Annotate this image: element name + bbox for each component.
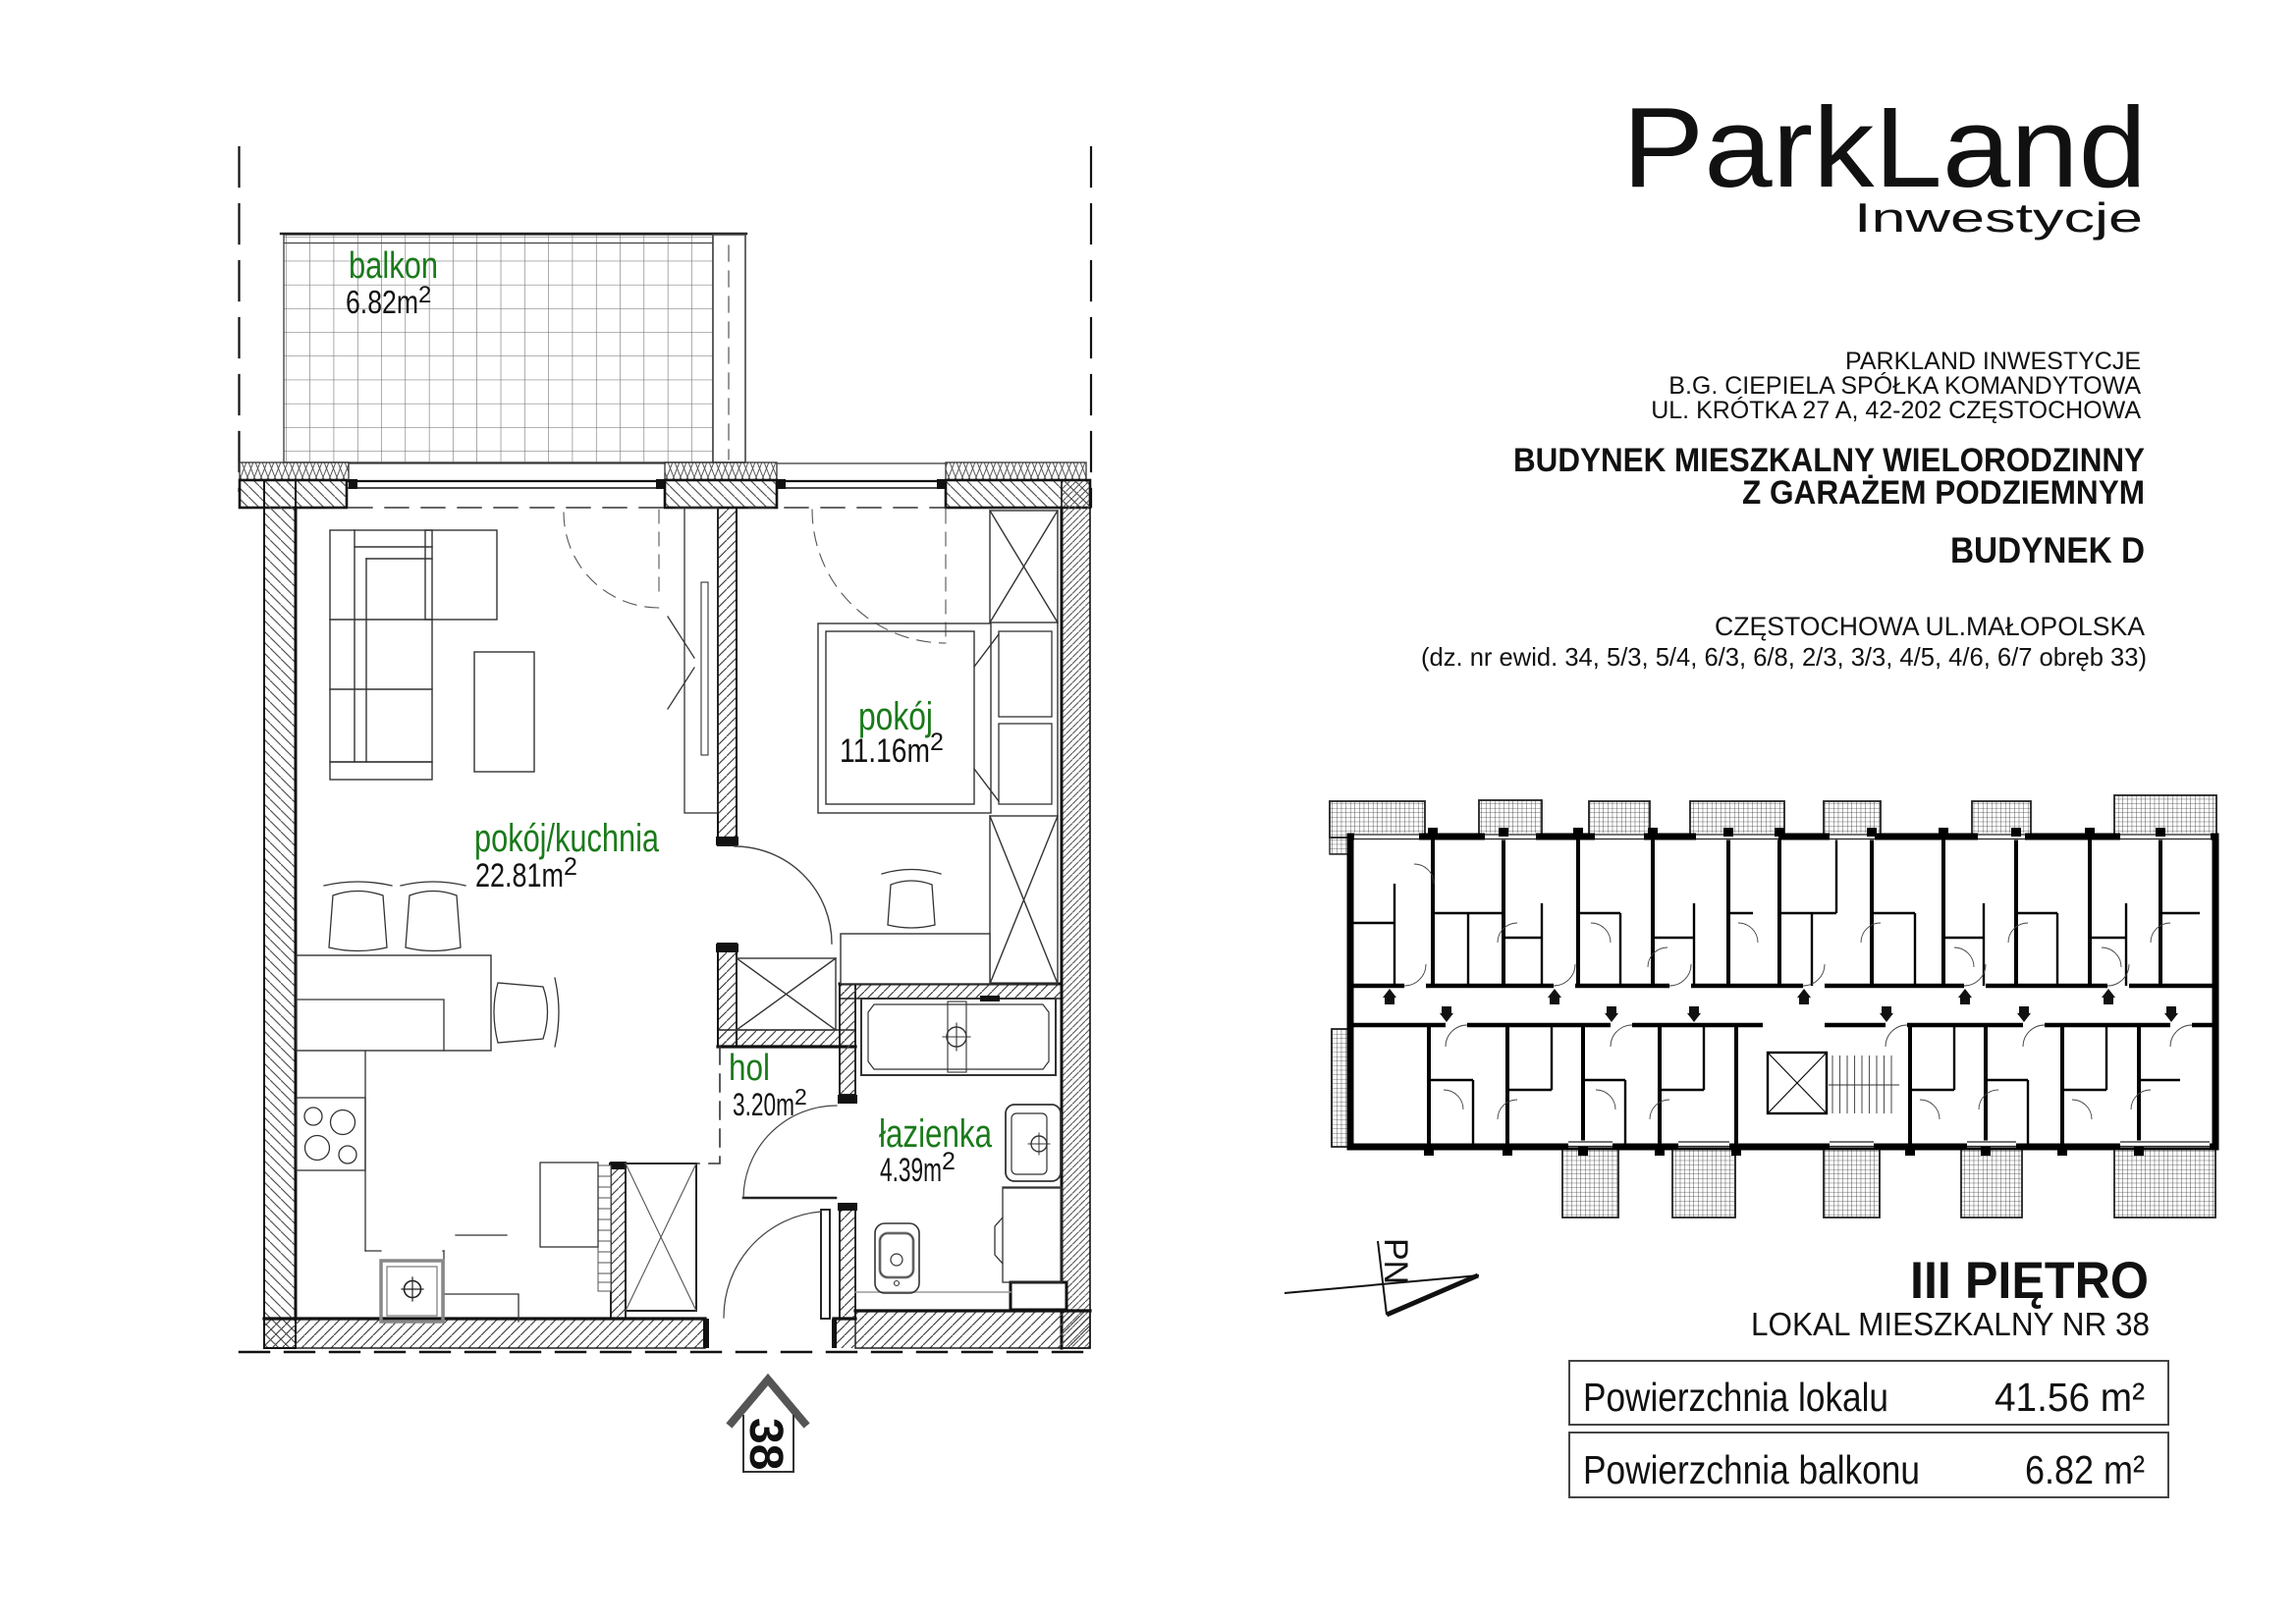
svg-text:hol: hol xyxy=(729,1048,770,1089)
svg-text:balkon: balkon xyxy=(349,245,438,287)
svg-text:PN: PN xyxy=(1377,1238,1414,1284)
svg-text:41.56 m²: 41.56 m² xyxy=(1995,1375,2145,1420)
svg-text:Inwestycje: Inwestycje xyxy=(1854,194,2143,241)
svg-text:CZĘSTOCHOWA UL.MAŁOPOLSKA: CZĘSTOCHOWA UL.MAŁOPOLSKA xyxy=(1715,612,2145,641)
svg-text:PARKLAND INWESTYCJE: PARKLAND INWESTYCJE xyxy=(1845,348,2141,375)
svg-text:(dz. nr ewid. 34, 5/3, 5/4, 6/: (dz. nr ewid. 34, 5/3, 5/4, 6/3, 6/8, 2/… xyxy=(1421,642,2147,672)
svg-text:Powierzchnia lokalu: Powierzchnia lokalu xyxy=(1583,1375,1888,1420)
svg-text:UL. KRÓTKA 27 A, 42-202 CZĘSTO: UL. KRÓTKA 27 A, 42-202 CZĘSTOCHOWA xyxy=(1651,396,2141,424)
svg-text:Powierzchnia balkonu: Powierzchnia balkonu xyxy=(1583,1447,1920,1492)
svg-text:III PIĘTRO: III PIĘTRO xyxy=(1910,1252,2149,1310)
svg-text:6.82 m²: 6.82 m² xyxy=(2025,1447,2145,1492)
svg-text:Z GARAŻEM PODZIEMNYM: Z GARAŻEM PODZIEMNYM xyxy=(1742,474,2145,512)
svg-text:LOKAL MIESZKALNY NR 38: LOKAL MIESZKALNY NR 38 xyxy=(1751,1306,2150,1342)
svg-text:B.G. CIEPIELA SPÓŁKA KOMANDYTO: B.G. CIEPIELA SPÓŁKA KOMANDYTOWA xyxy=(1668,371,2141,400)
svg-text:11.16m2: 11.16m2 xyxy=(840,729,944,770)
svg-text:BUDYNEK D: BUDYNEK D xyxy=(1950,530,2145,570)
svg-text:22.81m2: 22.81m2 xyxy=(475,853,577,894)
svg-text:ParkLand: ParkLand xyxy=(1622,83,2147,211)
svg-text:38: 38 xyxy=(739,1418,792,1470)
svg-text:łazienka: łazienka xyxy=(879,1112,993,1156)
